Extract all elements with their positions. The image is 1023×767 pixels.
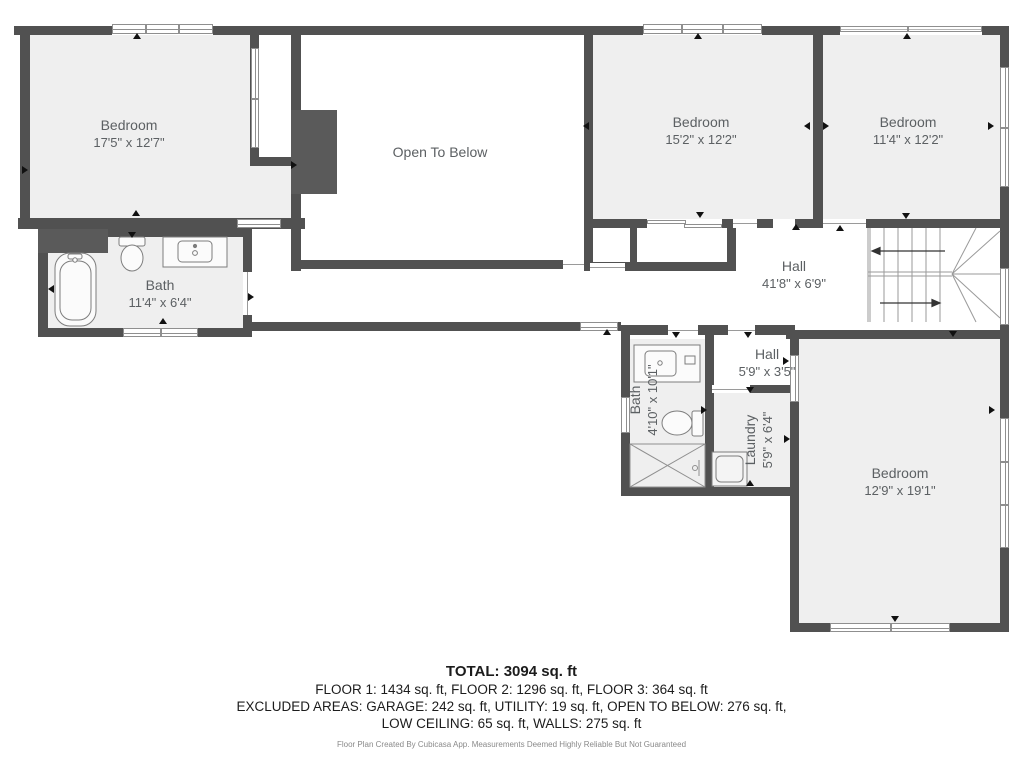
room-dims: 15'2" x 12'2" (665, 131, 736, 148)
room-label-bath-main: Bath 11'4" x 6'4" (128, 277, 191, 311)
wall-segment (786, 330, 1009, 339)
excluded-areas-text-1: EXCLUDED AREAS: GARAGE: 242 sq. ft, UTIL… (0, 698, 1023, 715)
wall-segment (584, 219, 647, 228)
wall-segment (252, 322, 621, 331)
wall-segment (213, 26, 301, 35)
room-label-laundry: Laundry 5'9" x 6'4" (742, 412, 776, 469)
room-name: Bedroom (873, 114, 943, 131)
room-dims: 17'5" x 12'7" (93, 134, 164, 151)
area-summary: TOTAL: 3094 sq. ft FLOOR 1: 1434 sq. ft,… (0, 663, 1023, 749)
door-direction-marker (128, 232, 136, 238)
door-direction-marker (291, 161, 297, 169)
room-label-hall-main: Hall 41'8" x 6'9" (762, 258, 826, 292)
door-direction-marker (248, 293, 254, 301)
room-name: Hall (762, 258, 826, 275)
room-name: Bedroom (864, 465, 935, 482)
room-dims: 4'10" x 10'1" (644, 364, 661, 435)
window-mullion (1000, 504, 1009, 506)
door-direction-marker (989, 406, 995, 414)
room-dims: 12'9" x 19'1" (864, 482, 935, 499)
door-direction-marker (583, 122, 589, 130)
window-mullion (251, 98, 259, 100)
window (112, 24, 213, 34)
window (1000, 268, 1009, 325)
window-mullion (160, 328, 162, 337)
door-direction-marker (603, 329, 611, 335)
window-mullion (178, 24, 180, 34)
door-leaf-line (823, 223, 866, 224)
wall-segment (621, 487, 799, 496)
room-label-bedroom-middle: Bedroom 15'2" x 12'2" (665, 114, 736, 148)
wall-mass (291, 110, 337, 194)
window-mullion (1000, 461, 1009, 463)
window (237, 219, 281, 228)
door-direction-marker (792, 224, 800, 230)
total-area-text: TOTAL: 3094 sq. ft (0, 663, 1023, 681)
door-direction-marker (836, 225, 844, 231)
window (643, 24, 762, 34)
staircase (868, 228, 1000, 322)
room-fill (250, 166, 291, 218)
door-direction-marker (22, 166, 28, 174)
disclaimer-text: Floor Plan Created By Cubicasa App. Meas… (0, 740, 1023, 749)
window (840, 26, 982, 32)
window-mullion (1000, 127, 1009, 129)
wall-segment (757, 219, 773, 228)
room-name: Laundry (742, 412, 759, 469)
door-leaf-line (733, 223, 757, 224)
sliding-door-panel (647, 220, 686, 224)
door-direction-marker (744, 332, 752, 338)
floor-plan-page: Bedroom 17'5" x 12'7" Open To Below Bedr… (0, 0, 1023, 767)
door-direction-marker (132, 210, 140, 216)
door-direction-marker (696, 212, 704, 218)
room-dims: 5'9" x 3'5" (739, 363, 796, 380)
door-direction-marker (48, 285, 54, 293)
wall-segment (20, 26, 30, 218)
door-direction-marker (903, 33, 911, 39)
wall-segment (291, 260, 563, 269)
door-direction-marker (159, 318, 167, 324)
room-label-bedroom-bottom-right: Bedroom 12'9" x 19'1" (864, 465, 935, 499)
door-direction-marker (701, 406, 707, 414)
window-mullion (145, 24, 147, 34)
door-direction-marker (902, 213, 910, 219)
door-direction-marker (823, 122, 829, 130)
door-direction-marker (133, 33, 141, 39)
floor-plan-canvas: Bedroom 17'5" x 12'7" Open To Below Bedr… (0, 0, 1023, 767)
floor-areas-text: FLOOR 1: 1434 sq. ft, FLOOR 2: 1296 sq. … (0, 681, 1023, 698)
window (580, 322, 618, 331)
room-dims: 11'4" x 6'4" (128, 294, 191, 311)
door-leaf-line (668, 330, 698, 331)
room-label-bath-lower: Bath 4'10" x 10'1" (627, 364, 661, 435)
room-dims: 41'8" x 6'9" (762, 275, 826, 292)
room-name: Bedroom (93, 117, 164, 134)
door-leaf-line (563, 264, 584, 265)
door-direction-marker (746, 387, 754, 393)
window-mullion (907, 26, 909, 32)
room-dims: 5'9" x 6'4" (759, 412, 776, 469)
wall-segment (866, 219, 1009, 228)
door-direction-marker (804, 122, 810, 130)
room-name: Bedroom (665, 114, 736, 131)
door-direction-marker (672, 332, 680, 338)
excluded-areas-text-2: LOW CEILING: 65 sq. ft, WALLS: 275 sq. f… (0, 715, 1023, 732)
door-direction-marker (949, 331, 957, 337)
window-mullion (890, 623, 892, 632)
door-leaf-line (728, 330, 755, 331)
door-direction-marker (783, 357, 789, 365)
room-name: Bath (128, 277, 191, 294)
wall-segment (762, 26, 840, 35)
stair-direction-arrows (872, 248, 945, 307)
wall-segment (813, 26, 823, 228)
door-direction-marker (988, 122, 994, 130)
wall-mass (38, 229, 108, 253)
wall-segment (584, 26, 593, 271)
sliding-door-panel (684, 224, 722, 228)
door-direction-marker (784, 435, 790, 443)
window-mullion (722, 24, 724, 34)
door-leaf-line (712, 389, 750, 390)
room-label-open-to-below: Open To Below (393, 144, 488, 161)
door-leaf-line (590, 267, 625, 268)
window (1000, 418, 1009, 548)
door-direction-marker (746, 480, 754, 486)
door-direction-marker (694, 33, 702, 39)
room-name: Bath (627, 364, 644, 435)
door-direction-marker (891, 616, 899, 622)
room-name: Open To Below (393, 144, 488, 161)
room-label-bedroom-top-right: Bedroom 11'4" x 12'2" (873, 114, 943, 148)
window-mullion (681, 24, 683, 34)
room-dims: 11'4" x 12'2" (873, 131, 943, 148)
room-label-bedroom-top-left: Bedroom 17'5" x 12'7" (93, 117, 164, 151)
